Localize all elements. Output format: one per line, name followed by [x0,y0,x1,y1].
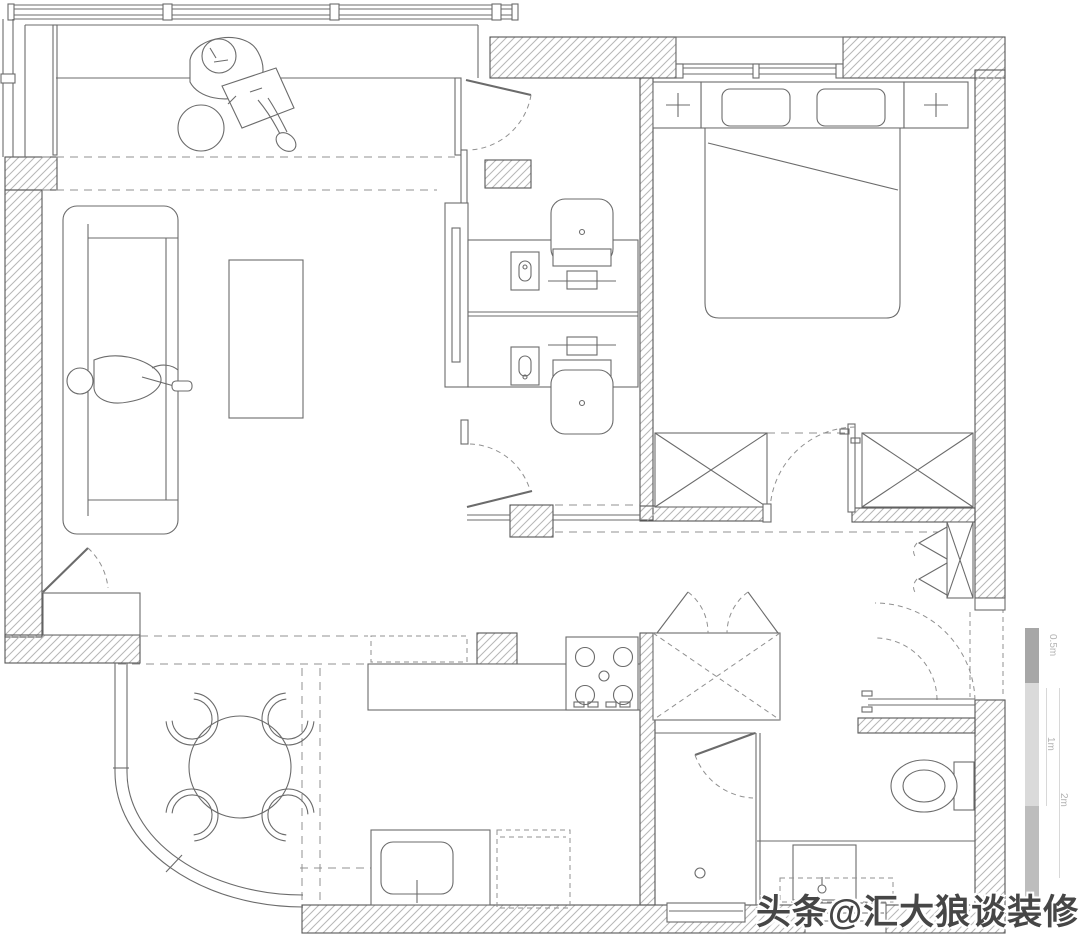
door-frame [975,598,1005,610]
bathroom [757,598,1005,933]
shower-room [655,733,760,922]
shower-window [667,903,745,922]
person-carrying-box [190,38,300,156]
bed [701,82,904,318]
bedroom-window [676,37,843,78]
washing-machine [497,830,570,908]
monitor [553,249,611,266]
toilet-bowl [891,760,957,812]
dining-chair [262,789,314,841]
scale-rule-2m [1059,688,1060,878]
kitchen [368,636,640,908]
bedroom-door [763,424,860,522]
scale-label-2m: 2m [1058,793,1069,807]
dining-set [166,693,314,841]
scale-segment-05m [1025,628,1039,683]
dining-chair [166,789,218,841]
dining-chair [166,693,218,745]
dining-table [189,716,291,818]
pillow [722,89,790,126]
fridge [653,592,780,720]
scale-label-1m: 1m [1045,737,1056,751]
study-area [445,199,638,434]
shoe-cabinet [914,522,974,598]
coffee-table [229,260,303,418]
upper-cabinets [371,636,467,662]
scale-segment-1m [1025,683,1039,806]
floor-lamp-circle [178,105,224,151]
storage-cabinet [43,593,140,635]
bedroom-wardrobes [655,433,973,507]
floor-drain [695,868,705,878]
dining-chair [262,693,314,745]
desk-chair [551,370,613,434]
pillow [817,89,885,126]
storage-door [43,548,140,635]
floor-plan-drawing [0,0,1080,937]
desk-unit [511,252,539,290]
watermark-text: 头条@汇大狼谈装修 [756,884,1080,935]
tall-cabinet [445,203,468,387]
keyboard [567,271,597,289]
floor-plan-page: 0.5m 1m 2m 头条@汇大狼谈装修 [0,0,1080,937]
keyboard [567,337,597,355]
entry-door [466,80,531,150]
sliding-door [868,699,975,705]
scale-label-05m: 0.5m [1047,634,1058,656]
